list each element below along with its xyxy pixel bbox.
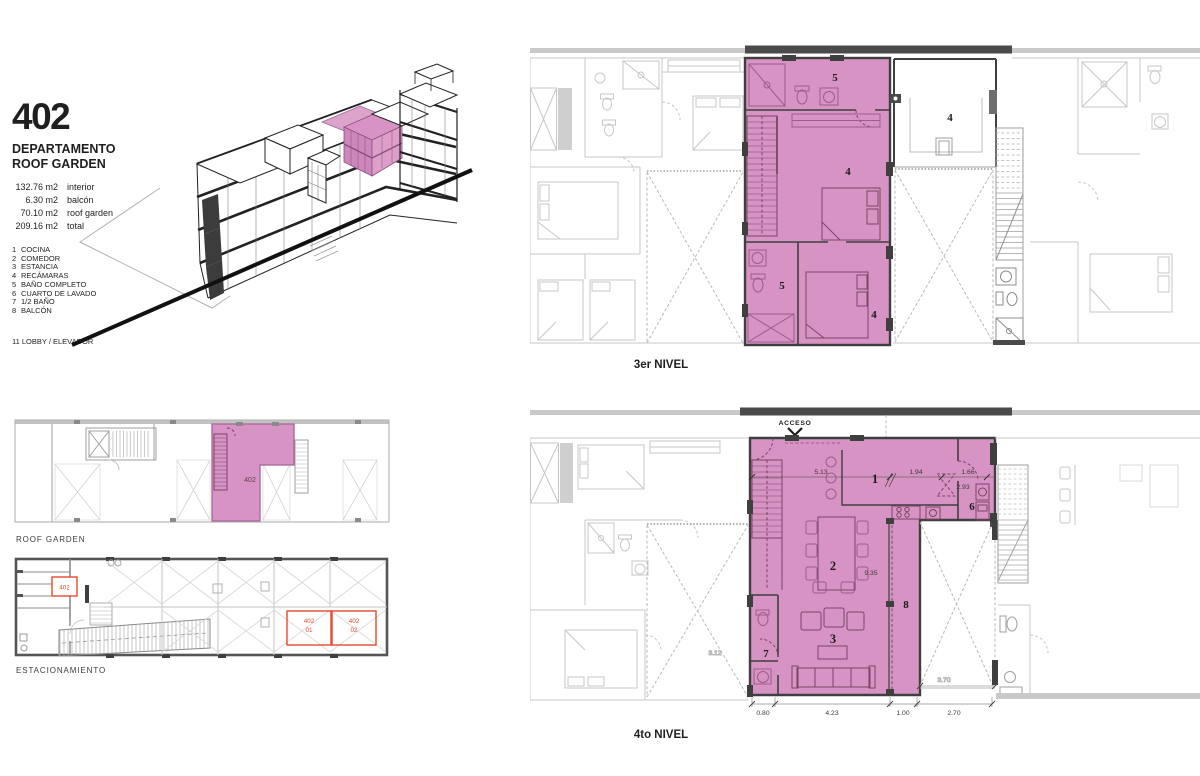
bottom-dimension-chain: 0.80 4.23 1.00 2.70 — [749, 697, 995, 717]
dim-1-66: 1.66 — [961, 469, 974, 476]
dim-3-70: 3.70 — [937, 677, 950, 684]
dim-4-23: 4.23 — [825, 710, 838, 717]
room-label-balcony: 8 — [903, 599, 909, 611]
storage-402-label: 402 — [59, 585, 70, 592]
terrace-room: 4 — [890, 59, 997, 167]
room-label-dining: 2 — [830, 559, 836, 573]
storage-402-box: 402 — [52, 577, 77, 596]
roof-unit-label: 402 — [244, 477, 256, 484]
area-value: 70.10 m2 — [12, 207, 58, 220]
level4-label: 4to NIVEL — [530, 729, 792, 741]
unit-402-level3: 5 4 5 4 — [742, 55, 893, 345]
street-line — [72, 170, 472, 345]
building-wireframe — [197, 100, 457, 300]
space2-num: 402 — [349, 618, 360, 625]
space1-sub: 01 — [305, 627, 313, 634]
room-label-bath-lower: 5 — [779, 280, 785, 292]
dim-1-00: 1.00 — [896, 710, 909, 717]
patio-void-right — [895, 169, 993, 342]
axonometric-building-drawing — [60, 50, 490, 365]
parking-plan: 402 402 01 402 02 — [14, 556, 390, 660]
level4-floor-plan: ACCESO 3.12 — [530, 405, 1200, 735]
level3-floor-plan: 5 4 5 4 4 — [530, 42, 1200, 352]
patio-void-left — [647, 171, 743, 343]
roof-garden-plan-label: ROOF GARDEN — [16, 535, 85, 544]
legend-num: 8 — [12, 307, 21, 316]
area-value: 6.30 m2 — [12, 194, 58, 207]
room-label-kitchen: 1 — [872, 472, 878, 486]
neighbor-unit-left — [530, 438, 748, 700]
sidewalk-band — [15, 420, 389, 424]
roof-garden-plan: 402 — [14, 418, 390, 532]
room-label-laundry: 6 — [969, 501, 975, 513]
neighbor-unit-left — [530, 58, 745, 343]
parking-plan-label: ESTACIONAMIENTO — [16, 666, 106, 675]
room-label-terrace: 4 — [947, 112, 953, 124]
acceso-arrow-icon — [788, 428, 802, 435]
plan-boundary — [15, 420, 389, 522]
plan-sheet: 402 DEPARTAMENTO ROOF GARDEN 132.76 m2in… — [0, 0, 1200, 776]
facade-band — [740, 408, 1012, 416]
dim-5-13: 5.13 — [814, 469, 827, 476]
dim-9-35: 9.35 — [864, 570, 877, 577]
room-label-bedroom-lower: 4 — [871, 309, 877, 321]
common-stairs-right — [993, 128, 1025, 345]
space1-num: 402 — [304, 618, 315, 625]
room-label-living: 3 — [830, 632, 836, 646]
room-label-half-bath: 7 — [763, 648, 769, 660]
area-value: 132.76 m2 — [12, 181, 58, 194]
patio-void-left: 3.12 — [647, 524, 748, 697]
parking-space-402-01: 402 01 — [287, 611, 331, 645]
space2-sub: 02 — [350, 627, 358, 634]
room-label-bath-top: 5 — [832, 72, 838, 84]
facade-band — [745, 46, 1012, 54]
stairs — [747, 116, 777, 236]
neighbor-unit-right — [893, 58, 1200, 343]
area-value: 209.16 m2 — [12, 220, 58, 233]
neighbor-unit-right — [995, 438, 1200, 699]
floor-squares — [213, 582, 269, 627]
patio-void-right: 3.70 — [917, 520, 998, 689]
dim-2-70: 2.70 — [947, 710, 960, 717]
ramp — [59, 619, 210, 656]
unit-402-level4: 5.13 1.94 1.66 2.93 9.35 — [747, 435, 997, 697]
dim-3-12: 3.12 — [708, 650, 721, 657]
dim-0-80: 0.80 — [756, 710, 769, 717]
shared-bath-fixtures — [996, 268, 1023, 343]
level3-label: 3er NIVEL — [530, 359, 792, 371]
acceso-label: ACCESO — [779, 420, 812, 427]
dim-1-94: 1.94 — [909, 469, 922, 476]
legend-label: BALCÓN — [21, 307, 52, 316]
unit-402-roof-garden: 402 — [212, 422, 294, 521]
room-label-bedroom-top: 4 — [845, 166, 851, 178]
